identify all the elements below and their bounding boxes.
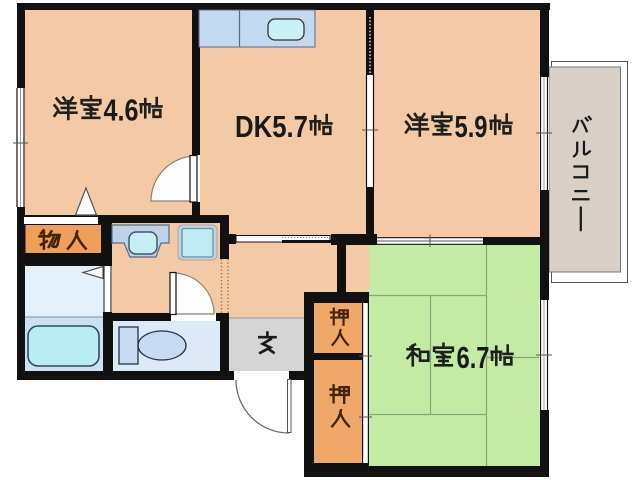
svg-text:6.7: 6.7: [457, 340, 490, 375]
svg-text:5.9: 5.9: [455, 109, 488, 144]
svg-text:DK5.7: DK5.7: [235, 109, 308, 144]
svg-text:4.6: 4.6: [104, 93, 139, 128]
